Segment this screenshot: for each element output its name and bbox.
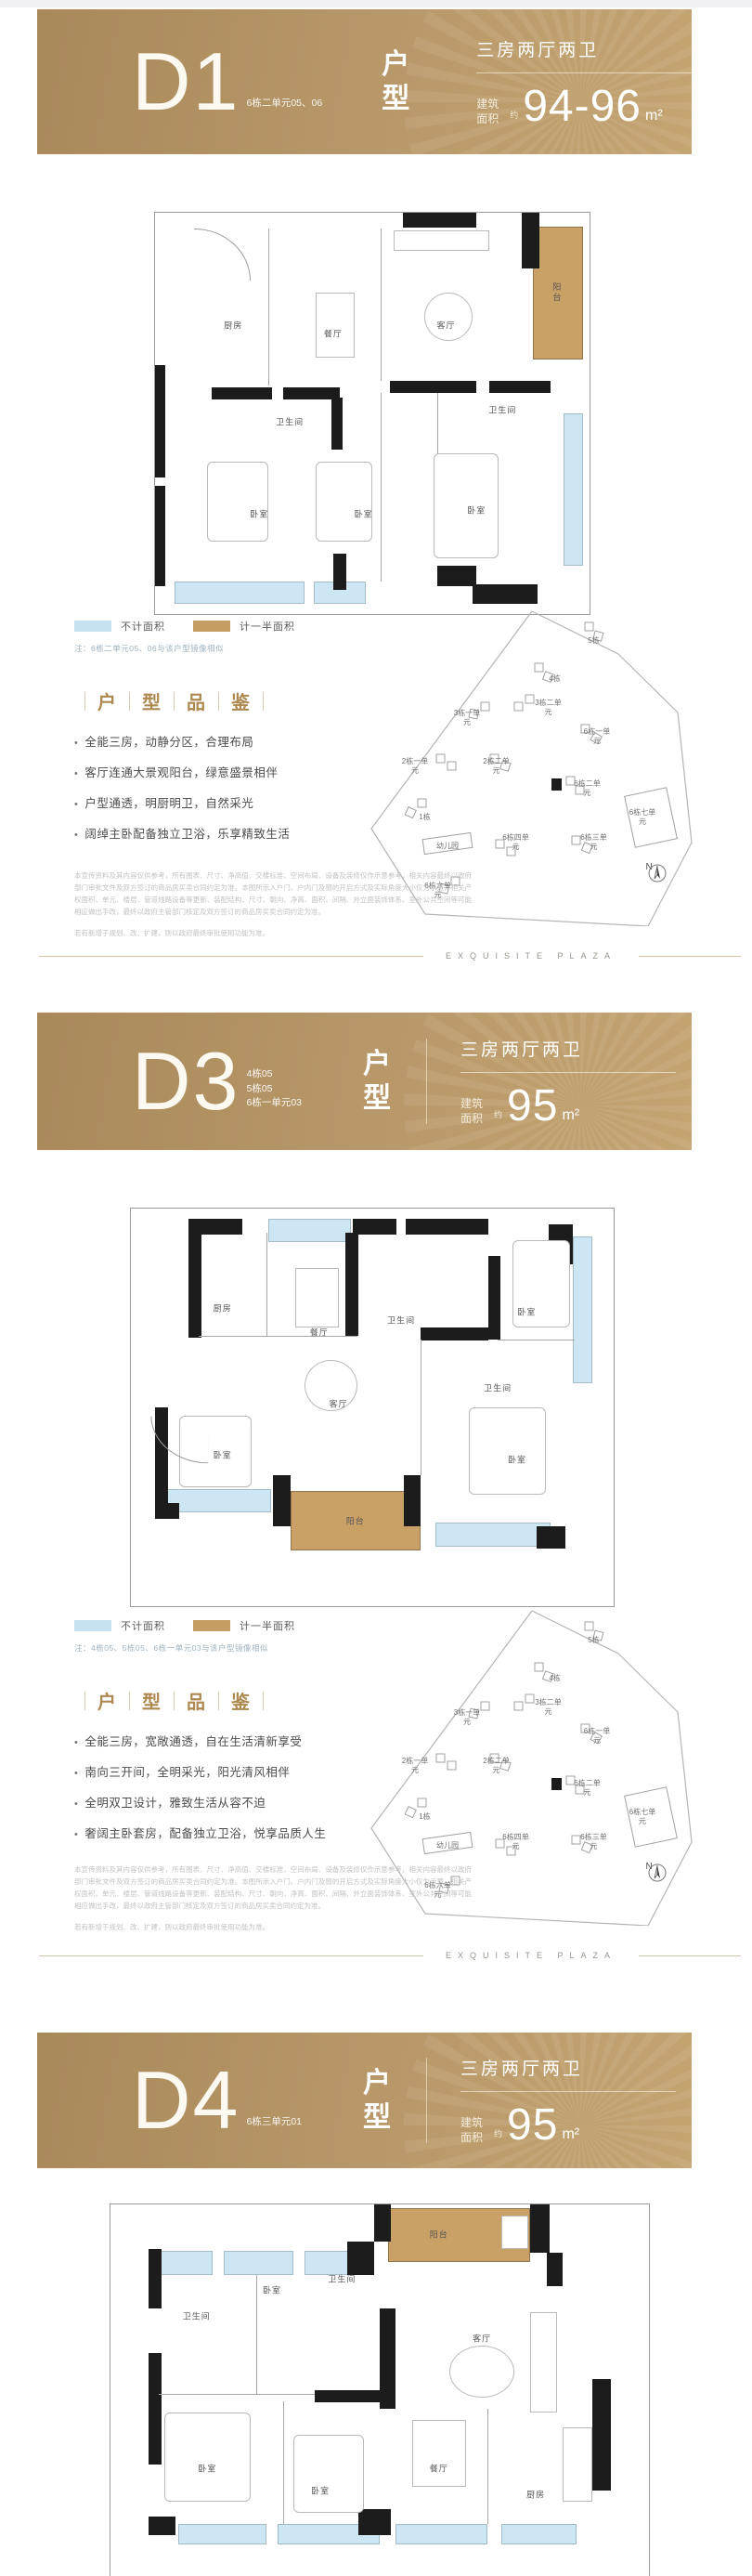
room-label-bedroom: 卧室	[355, 508, 373, 520]
legend-swatch-halfarea	[193, 621, 230, 632]
map-label: 6栋二单元	[572, 1779, 603, 1798]
map-label: 2栋一单元	[399, 1757, 431, 1775]
area-label: 建筑面积	[460, 1096, 485, 1126]
room-label-kitchen: 厨房	[224, 319, 242, 331]
unit-subtitle: 6栋三单元01	[247, 2115, 303, 2129]
unit-subtitle: 4栋05 5栋05 6栋一单元03	[247, 1067, 303, 1110]
area-unit: m²	[562, 2126, 579, 2143]
room-label-bedroom: 卧室	[508, 1453, 526, 1465]
banner-d3: D3 4栋05 5栋05 6栋一单元03 户型 三房两厅两卫 建筑面积 约 95…	[37, 1013, 692, 1150]
type-label: 户型	[382, 47, 409, 117]
room-spec: 三房两厅两卫	[476, 36, 692, 73]
unit-name: D4	[132, 2067, 240, 2134]
map-label: 6栋三单元	[578, 833, 610, 852]
legend: 不计面积 计一半面积	[74, 619, 295, 634]
room-label-bedroom: 卧室	[250, 508, 268, 520]
area-label: 建筑面积	[460, 2115, 485, 2145]
room-label-living: 客厅	[437, 319, 456, 331]
room-label-bath: 卫生间	[276, 415, 304, 427]
floorplan-d3: 阳台 厨房 餐厅 卫生间 卧室 卫生间 客厅 卧室 卧室	[130, 1208, 615, 1607]
floorplan-d4: 阳台 卫生间 卧室 卫生间 客厅 卧室 卧室 餐厅 厨房	[110, 2203, 650, 2576]
legend: 不计面积 计一半面积	[74, 1618, 295, 1633]
mirror-note: 注：6栋二单元05、06与该户型镜像相似	[74, 643, 224, 654]
living-table	[424, 293, 472, 341]
north-compass: N	[646, 1862, 653, 1872]
map-label: 2栋一单元	[399, 757, 431, 776]
bed	[293, 2435, 363, 2513]
map-label: 1栋	[409, 813, 441, 822]
selling-points: 全能三房，宽敞通透，自在生活清新享受 南向三开间，全明采光，阳光清风相伴 全明双…	[74, 1732, 385, 1854]
area-value: 95	[507, 2106, 558, 2145]
area-unit: m²	[645, 108, 663, 124]
room-label-bedroom: 卧室	[517, 1306, 536, 1318]
room-label-kitchen: 厨房	[526, 2489, 545, 2501]
area-unit: m²	[562, 1107, 579, 1124]
disclaimer: 本宣传资料及其内容仅供参考，所有图表、尺寸、净高值、交楼标准、空间布局、设备及装…	[74, 870, 472, 948]
map-label: 幼儿园	[432, 842, 463, 851]
mirror-note: 注：4栋05、5栋05、6栋一单元03与该户型镜像相似	[74, 1642, 268, 1654]
map-label: 6栋四单元	[500, 833, 532, 852]
area-approx: 约	[494, 2127, 502, 2139]
legend-swatch-noarea	[74, 621, 111, 632]
brand-divider: EXQUISITE PLAZA	[28, 951, 752, 961]
room-label-balcony: 阳台	[430, 2229, 448, 2241]
compass-icon	[646, 1862, 668, 1884]
bed	[164, 2413, 251, 2502]
bed	[207, 462, 268, 542]
map-label: 5栋	[578, 636, 610, 646]
room-label-balcony: 阳台	[346, 1514, 365, 1526]
area-value: 94-96	[523, 87, 642, 126]
legend-label-halfarea: 计一半面积	[240, 619, 295, 634]
disclaimer: 本宣传资料及其内容仅供参考，所有图表、尺寸、净高值、交楼标准、空间布局、设备及装…	[74, 1863, 472, 1942]
floorplan-d1: 阳台 厨房 餐厅 客厅 卫生间 卫生间 卧室 卧室 卧室	[154, 212, 590, 615]
highlighted-building-marker	[551, 778, 562, 791]
living-table	[449, 2346, 514, 2398]
banner-d1: D1 6栋二单元05、06 户型 三房两厅两卫 建筑面积 约 94-96 m²	[37, 9, 692, 154]
selling-point: 户型通透，明厨明卫，自然采光	[74, 793, 385, 811]
unit-subtitle: 6栋二单元05、06	[247, 97, 323, 111]
sofa	[530, 2312, 557, 2413]
room-label-kitchen: 厨房	[214, 1302, 232, 1314]
north-compass: N	[646, 862, 653, 872]
page-top-strip	[0, 0, 752, 7]
room-label-bath: 卫生间	[183, 2310, 211, 2322]
entry-door-arc	[194, 229, 251, 281]
dining-table	[316, 293, 355, 357]
map-label: 2栋二单元	[481, 757, 512, 776]
tv-cabinet	[394, 230, 489, 251]
room-label-living: 客厅	[330, 1397, 348, 1409]
brand-divider: EXQUISITE PLAZA	[28, 1951, 752, 1960]
map-label: 6栋七单元	[627, 1808, 658, 1826]
area-approx: 约	[510, 109, 518, 121]
map-label: 6栋三单元	[578, 1833, 610, 1851]
room-label-bedroom: 卧室	[263, 2284, 281, 2296]
bed	[469, 1407, 546, 1495]
dining-table	[412, 2420, 466, 2487]
area-approx: 约	[494, 1108, 502, 1120]
map-label: 3栋一单元	[451, 1708, 483, 1727]
map-label: 6栋四单元	[500, 1833, 532, 1851]
map-label: 2栋二单元	[481, 1757, 512, 1775]
map-label: 4栋	[539, 674, 571, 684]
map-label: 4栋	[539, 1674, 571, 1683]
room-label-dining: 餐厅	[310, 1326, 329, 1338]
map-label: 6栋一单元	[581, 1727, 613, 1746]
washer	[501, 2216, 528, 2249]
room-label-dining: 餐厅	[430, 2463, 448, 2475]
room-spec: 三房两厅两卫	[460, 2055, 676, 2092]
unit-specs: 三房两厅两卫 建筑面积 约 94-96 m²	[476, 36, 692, 126]
disclaimer-paragraph: 若有新增于规划、改、扩建，则以政府最终审批使用功能为准。	[74, 927, 472, 939]
selling-point: 全能三房，动静分区，合理布局	[74, 732, 385, 750]
banner-d4: D4 6栋三单元01 户型 三房两厅两卫 建筑面积 约 95 m²	[37, 2033, 692, 2168]
selling-points: 全能三房，动静分区，合理布局 客厅连通大景观阳台，绿意盛景相伴 户型通透，明厨明…	[74, 732, 385, 855]
appraisal-heading: 户 型 品 鉴	[72, 1687, 276, 1714]
map-label: 6栋七单元	[627, 808, 658, 827]
room-label-bath: 卫生间	[488, 403, 516, 415]
room-label-bedroom: 卧室	[198, 2463, 216, 2475]
selling-point: 客厅连通大景观阳台，绿意盛景相伴	[74, 763, 385, 780]
room-label-bath: 卫生间	[328, 2273, 356, 2285]
map-label: 6栋二单元	[572, 779, 603, 798]
map-label: 5栋	[578, 1636, 610, 1645]
dining-table	[295, 1268, 339, 1327]
type-label: 户型	[361, 2066, 393, 2136]
room-label-bedroom: 卧室	[214, 1449, 232, 1461]
room-label-bath: 卫生间	[387, 1314, 415, 1326]
room-label-bedroom: 卧室	[467, 503, 486, 516]
window-strip	[564, 413, 583, 566]
appraisal-heading: 户 型 品 鉴	[72, 687, 276, 714]
map-label: 1栋	[409, 1812, 441, 1822]
window-strip	[175, 582, 305, 604]
bed	[316, 462, 372, 542]
kitchen-counter	[563, 2427, 592, 2502]
bed	[434, 453, 499, 557]
map-label: 3栋二单元	[533, 1698, 564, 1717]
unit-title-block: D1 6栋二单元05、06	[132, 48, 322, 115]
area-value: 95	[507, 1087, 558, 1126]
type-label: 户型	[361, 1047, 393, 1117]
unit-name: D3	[132, 1048, 240, 1115]
unit-name: D1	[132, 48, 240, 115]
map-label: 幼儿园	[432, 1841, 463, 1850]
legend-label-noarea: 不计面积	[121, 619, 165, 634]
disclaimer-paragraph: 本宣传资料及其内容仅供参考，所有图表、尺寸、净高值、交楼标准、空间布局、设备及装…	[74, 870, 472, 919]
highlighted-building-marker	[551, 1778, 562, 1790]
map-label: 3栋二单元	[533, 699, 564, 717]
room-spec: 三房两厅两卫	[460, 1036, 676, 1073]
room-label-balcony: 阳台	[551, 282, 563, 303]
area-row: 建筑面积 约 94-96 m²	[476, 87, 692, 126]
brand-name: EXQUISITE PLAZA	[446, 951, 616, 961]
map-label: 6栋一单元	[581, 727, 613, 746]
map-label: 3栋一单元	[451, 709, 483, 727]
selling-point: 阔绰主卧配备独立卫浴，乐享精致生活	[74, 824, 385, 842]
room-label-living: 客厅	[473, 2333, 491, 2345]
room-label-bath: 卫生间	[484, 1381, 512, 1393]
compass-icon	[646, 862, 668, 884]
area-label: 建筑面积	[476, 97, 500, 126]
room-label-bedroom: 卧室	[311, 2485, 330, 2497]
room-label-dining: 餐厅	[324, 327, 343, 339]
